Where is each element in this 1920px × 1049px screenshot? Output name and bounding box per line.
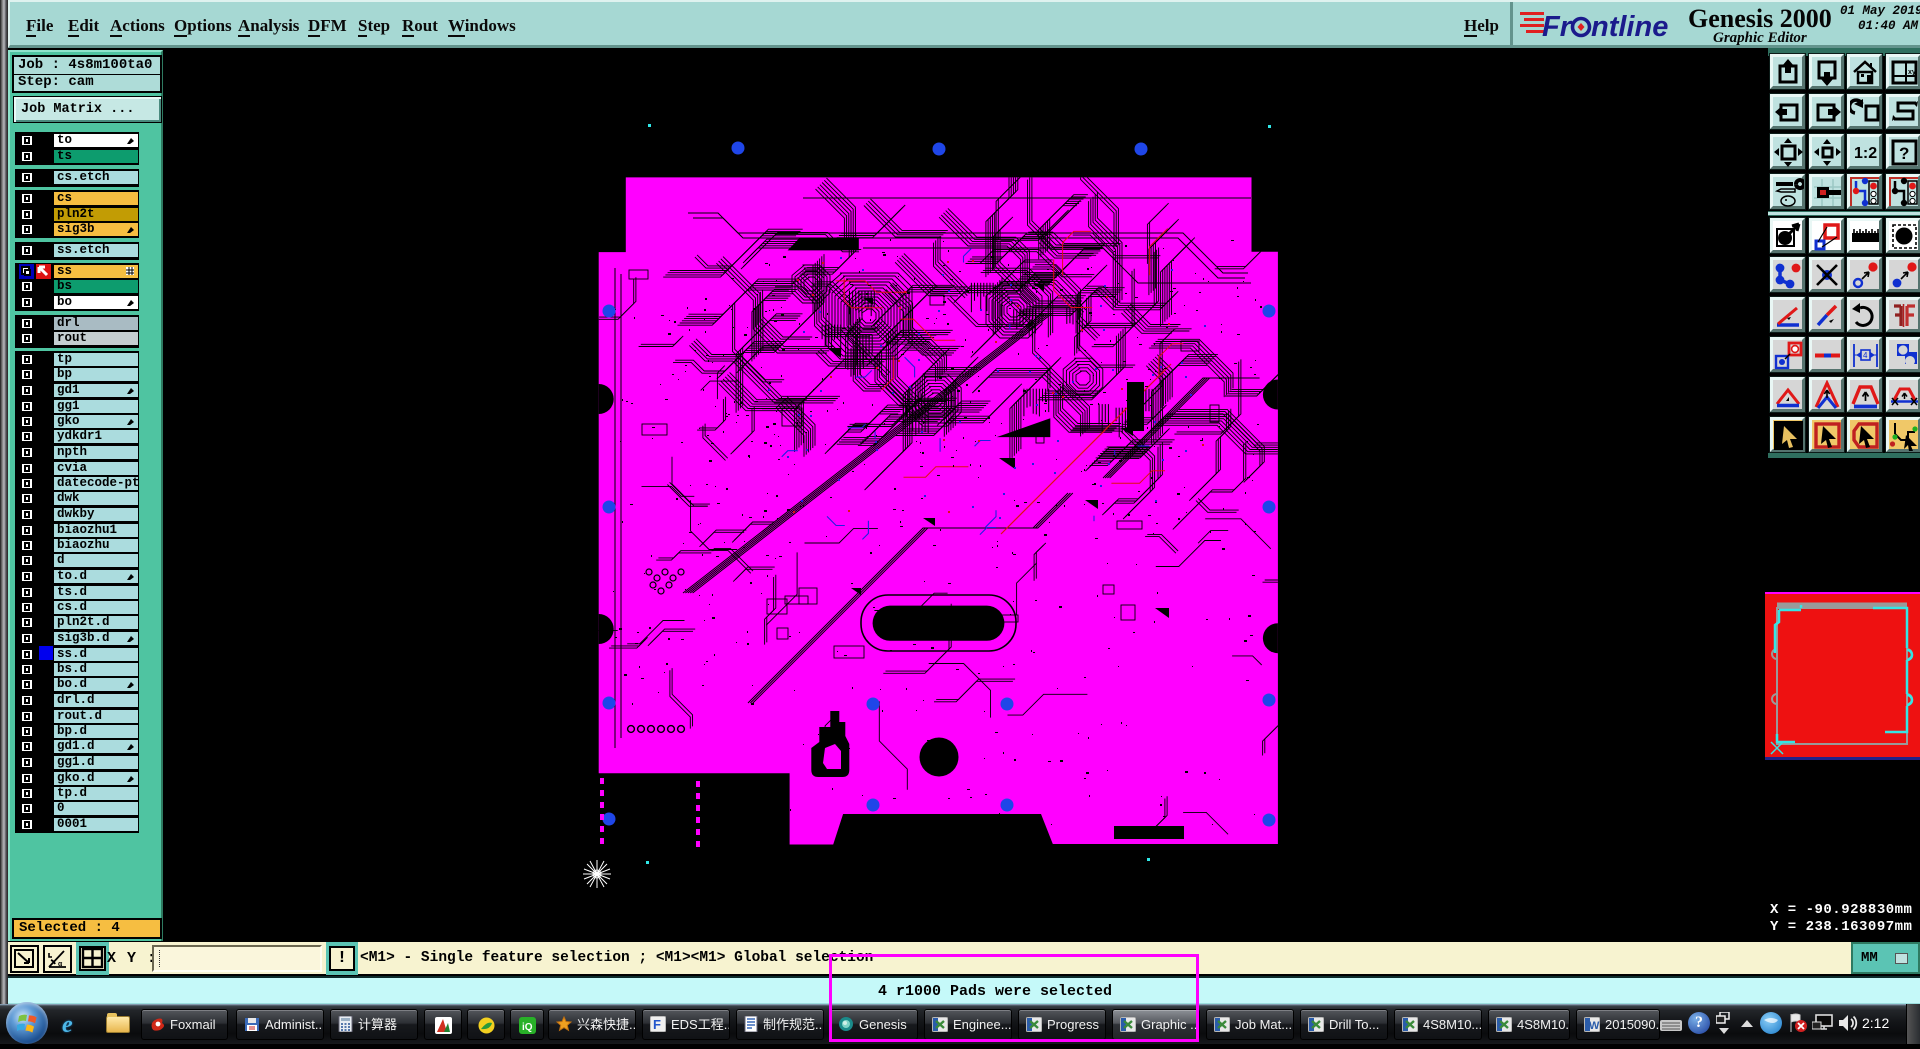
svg-text:1:2: 1:2 (1854, 145, 1877, 162)
svg-text:iQ: iQ (522, 1022, 533, 1033)
svg-text:ntline: ntline (1591, 11, 1668, 43)
svg-text:F: F (653, 1017, 661, 1032)
svg-text:xy: xy (1908, 69, 1916, 76)
svg-text:α: α (58, 961, 63, 968)
svg-text:4: 4 (1863, 351, 1868, 360)
svg-text:Fr: Fr (1542, 11, 1573, 43)
svg-text:?: ? (1899, 144, 1909, 163)
svg-text:W: W (1589, 1020, 1600, 1032)
